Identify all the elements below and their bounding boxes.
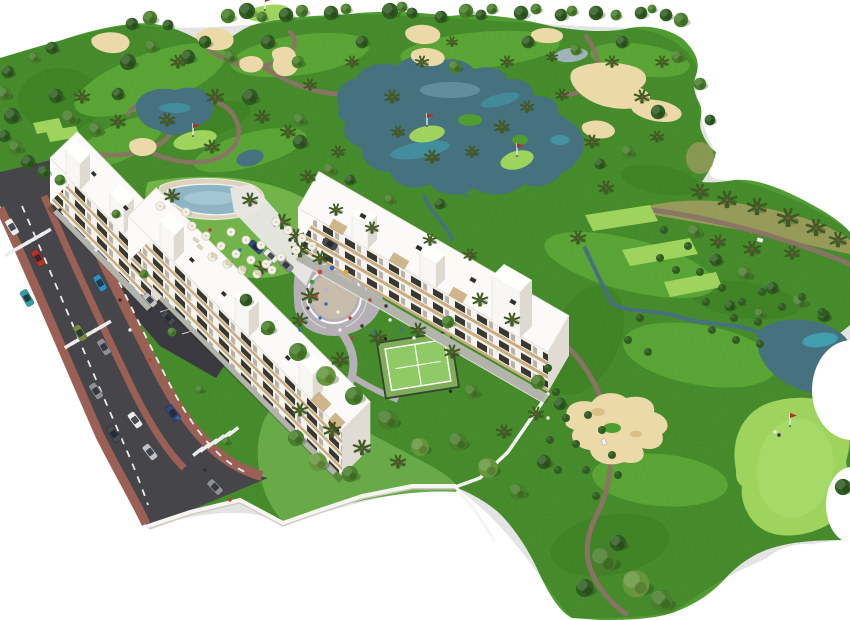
person-icon <box>388 318 391 321</box>
bush-icon <box>598 426 606 434</box>
bush-icon <box>544 364 552 372</box>
tree-icon <box>514 6 531 20</box>
tree-icon <box>487 4 500 15</box>
tree-icon <box>296 5 311 18</box>
tree-icon <box>567 6 580 17</box>
tree-icon <box>324 6 341 20</box>
bush-icon <box>624 336 632 344</box>
bush-icon <box>754 318 762 326</box>
playground-equipment-icon <box>318 270 323 275</box>
golf-resort-aerial-render <box>0 0 850 620</box>
person-icon <box>350 336 353 339</box>
bush-icon <box>546 436 554 444</box>
bush-icon <box>562 414 570 422</box>
person-icon <box>412 336 415 339</box>
bush-icon <box>756 340 764 348</box>
tree-icon <box>163 20 176 31</box>
bush-icon <box>708 326 716 334</box>
person-icon <box>336 310 339 313</box>
person-icon <box>368 298 371 301</box>
person-icon <box>348 316 351 319</box>
bush-icon <box>738 298 746 306</box>
bush-icon <box>552 388 560 396</box>
bush-icon <box>608 451 616 459</box>
person-icon <box>400 328 403 331</box>
person-icon <box>203 468 206 471</box>
person-icon <box>324 302 327 305</box>
tree-icon <box>705 115 718 126</box>
person-icon <box>58 208 61 211</box>
tree-icon <box>611 10 624 21</box>
person-icon <box>238 248 241 251</box>
playground-equipment-icon <box>330 266 335 271</box>
tree-icon <box>221 9 238 23</box>
person-icon <box>118 298 121 301</box>
tree-icon <box>279 8 296 22</box>
tree-icon <box>459 4 476 18</box>
tree-icon <box>476 10 489 21</box>
playground-equipment-icon <box>354 280 359 285</box>
person-icon <box>384 304 387 307</box>
lake-island <box>458 114 482 126</box>
bush-icon <box>730 314 738 322</box>
tree-icon <box>648 5 659 14</box>
bush-icon <box>798 293 806 301</box>
person-icon <box>372 330 375 333</box>
tree-icon <box>635 7 650 20</box>
golf-cart-icon <box>602 439 607 446</box>
person-icon <box>208 228 211 231</box>
playground-equipment-icon <box>310 280 315 285</box>
bush-icon <box>696 268 704 276</box>
tree-icon <box>660 9 675 22</box>
bush-icon <box>584 411 592 419</box>
person-icon <box>318 316 321 319</box>
bush-icon <box>572 440 580 448</box>
lake-island <box>512 135 528 145</box>
person-icon <box>148 358 151 361</box>
bush-icon <box>732 336 740 344</box>
tree-icon <box>407 8 420 19</box>
tree-icon <box>435 11 450 24</box>
bush-icon <box>636 314 644 322</box>
bush-icon <box>554 466 562 474</box>
person-icon <box>268 260 271 263</box>
tree-icon <box>531 4 544 15</box>
person-icon <box>228 498 231 501</box>
person-icon <box>314 294 317 297</box>
bush-icon <box>644 348 652 356</box>
bush-icon <box>672 266 680 274</box>
person-icon <box>128 328 131 331</box>
bush-icon <box>614 471 622 479</box>
tree-icon <box>674 13 691 27</box>
bush-icon <box>818 308 826 316</box>
person-icon <box>777 433 780 436</box>
bush-icon <box>660 226 668 234</box>
dry-slope <box>686 142 714 174</box>
tree-icon <box>239 3 258 19</box>
scene-canvas <box>0 0 850 620</box>
playground-equipment-icon <box>344 270 349 275</box>
person-icon <box>288 238 291 241</box>
person-icon <box>546 416 549 419</box>
playground-equipment-icon <box>324 288 329 293</box>
bush-icon <box>702 298 710 306</box>
bush-icon <box>684 242 692 250</box>
person-icon <box>176 416 179 419</box>
bush-icon <box>592 492 600 500</box>
tree-icon <box>694 78 709 91</box>
person-icon <box>773 430 776 433</box>
person-icon <box>306 306 309 309</box>
person-icon <box>360 324 363 327</box>
tree-icon <box>143 11 160 25</box>
person-icon <box>94 248 97 251</box>
person-icon <box>298 328 301 331</box>
tree-icon <box>589 6 606 20</box>
car-icon <box>19 289 34 308</box>
bush-icon <box>656 254 664 262</box>
person-icon <box>338 328 341 331</box>
tree-icon <box>341 4 354 15</box>
tree-icon <box>126 18 141 31</box>
bush-icon <box>718 284 726 292</box>
bush-icon <box>778 303 786 311</box>
bush-icon <box>582 466 590 474</box>
bush-icon <box>758 288 766 296</box>
